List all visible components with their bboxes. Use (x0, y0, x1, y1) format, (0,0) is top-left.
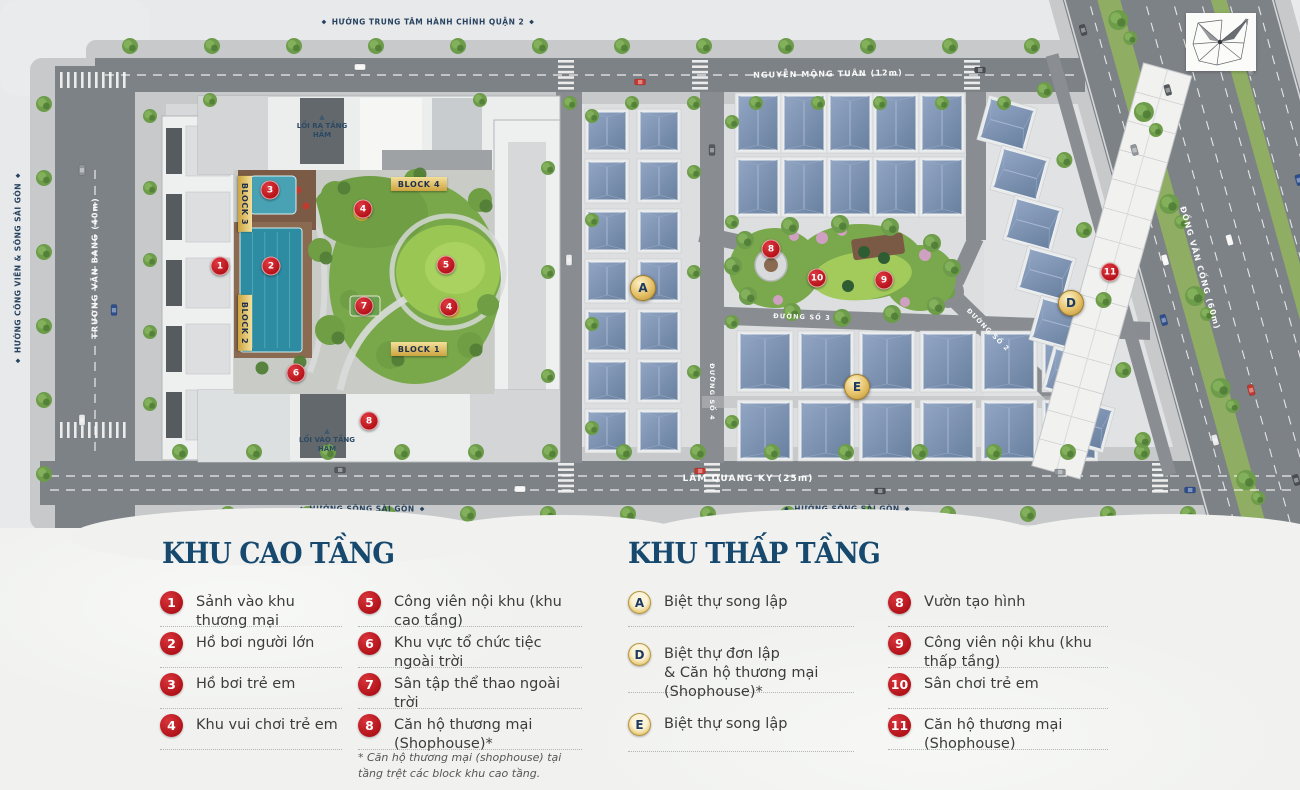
legend-marker-2: 2 (160, 632, 183, 655)
block-label: BLOCK 4 (391, 177, 447, 191)
legend-column-1: 1Sảnh vào khu thương mại2Hồ bơi người lớ… (160, 586, 342, 750)
basement-access-label: ▲LỐI RA TẦNG HẦM (290, 114, 354, 140)
compass-icon (1186, 13, 1256, 71)
legend-item-label: Khu vực tổ chức tiệc ngoài trời (394, 632, 582, 672)
map-marker-9: 9 (875, 271, 894, 290)
map-marker-4: 4 (440, 298, 459, 317)
legend-item-label: Hồ bơi trẻ em (196, 673, 295, 694)
legend-panel: KHU CAO TẦNG KHU THẤP TẦNG 1Sảnh vào khu… (0, 528, 1300, 790)
legend-column-3: ABiệt thự song lậpDBiệt thự đơn lập& Căn… (628, 586, 854, 752)
map-marker-6: 6 (287, 364, 306, 383)
legend-item: 11Căn hộ thương mại (Shophouse) (888, 709, 1108, 750)
legend-item-label: Sân chơi trẻ em (924, 673, 1039, 694)
map-marker-3: 3 (261, 181, 280, 200)
legend-marker-4: 4 (160, 714, 183, 737)
legend-marker-5: 5 (358, 591, 381, 614)
direction-arrow-icon: ◆ (420, 506, 425, 512)
legend-column-4: 8Vườn tạo hình9Công viên nội khu (khu th… (888, 586, 1108, 750)
legend-item-label: Căn hộ thương mại (Shophouse) (924, 714, 1108, 754)
legend-item: 10Sân chơi trẻ em (888, 668, 1108, 709)
legend-item-label: Biệt thự đơn lập& Căn hộ thương mại (Sho… (664, 643, 854, 702)
legend-marker-3: 3 (160, 673, 183, 696)
legend-marker-8: 8 (888, 591, 911, 614)
road-label: LÂM QUANG KY (25m) (682, 474, 813, 484)
map-marker-5: 5 (437, 256, 456, 275)
direction-arrow-icon: ◆ (322, 19, 327, 25)
direction-arrow-icon: ◆ (15, 173, 21, 178)
legend-key-E: E (628, 713, 651, 736)
legend-item: 8Căn hộ thương mại (Shophouse)* (358, 709, 582, 750)
legend-marker-11: 11 (888, 714, 911, 737)
legend-key-D: D (628, 643, 651, 666)
map-marker-8: 8 (762, 240, 781, 259)
map-marker-11: 11 (1101, 263, 1120, 282)
legend-title-low-rise: KHU THẤP TẦNG (628, 536, 880, 570)
legend-item-label: Biệt thự song lập (664, 713, 787, 734)
legend-footnote: * Căn hộ thương mại (shophouse) tại tầng… (358, 750, 588, 782)
map-zone-marker-E: E (844, 374, 870, 400)
map-marker-2: 2 (262, 257, 281, 276)
legend-item: 9Công viên nội khu (khu thấp tầng) (888, 627, 1108, 668)
master-plan-page: ◆HƯỚNG TRUNG TÂM HÀNH CHÍNH QUẬN 2◆◆HƯỚN… (0, 0, 1300, 790)
basement-access-label: ▲LỐI VÀO TẦNG HẦM (295, 428, 359, 454)
legend-item: 2Hồ bơi người lớn (160, 627, 342, 668)
ramp-arrow-icon: ▲ (295, 428, 359, 435)
legend-item-label: Khu vui chơi trẻ em (196, 714, 338, 735)
legend-marker-10: 10 (888, 673, 911, 696)
legend-marker-8: 8 (358, 714, 381, 737)
legend-item: 5Công viên nội khu (khu cao tầng) (358, 586, 582, 627)
block-label: BLOCK 3 (238, 176, 252, 232)
legend-item-label: Sảnh vào khu thương mại (196, 591, 342, 631)
cloud-edge (1010, 514, 1300, 562)
legend-marker-9: 9 (888, 632, 911, 655)
legend-marker-6: 6 (358, 632, 381, 655)
legend-marker-1: 1 (160, 591, 183, 614)
block-label: BLOCK 2 (238, 295, 252, 351)
legend-item: 6Khu vực tổ chức tiệc ngoài trời (358, 627, 582, 668)
legend-item-label: Vườn tạo hình (924, 591, 1025, 612)
legend-item: 8Vườn tạo hình (888, 586, 1108, 627)
legend-item-label: Hồ bơi người lớn (196, 632, 314, 653)
direction-arrow-icon: ◆ (529, 19, 534, 25)
legend-item-label: Sân tập thể thao ngoài trời (394, 673, 582, 713)
legend-item-label: Biệt thự song lập (664, 591, 787, 612)
map-marker-7: 7 (355, 297, 374, 316)
map-marker-8: 8 (360, 412, 379, 431)
map-marker-1: 1 (211, 257, 230, 276)
legend-item: 1Sảnh vào khu thương mại (160, 586, 342, 627)
map-zone-marker-D: D (1058, 290, 1084, 316)
legend-item: DBiệt thự đơn lập& Căn hộ thương mại (Sh… (628, 627, 854, 693)
map-marker-4: 4 (354, 200, 373, 219)
legend-key-A: A (628, 591, 651, 614)
legend-marker-7: 7 (358, 673, 381, 696)
legend-column-2: 5Công viên nội khu (khu cao tầng)6Khu vự… (358, 586, 582, 750)
legend-item-label: Công viên nội khu (khu thấp tầng) (924, 632, 1108, 672)
road-label: ĐƯỜNG SỐ 4 (708, 363, 716, 421)
ramp-arrow-icon: ▲ (290, 114, 354, 121)
road-label: TRƯƠNG VĂN BANG (40m) (91, 197, 100, 338)
legend-item-label: Công viên nội khu (khu cao tầng) (394, 591, 582, 631)
direction-arrow-icon: ◆ (15, 358, 21, 363)
block-label: BLOCK 1 (391, 342, 447, 356)
site-plan-map: ◆HƯỚNG TRUNG TÂM HÀNH CHÍNH QUẬN 2◆◆HƯỚN… (0, 0, 1300, 530)
legend-item: 4Khu vui chơi trẻ em (160, 709, 342, 750)
legend-item: 7Sân tập thể thao ngoài trời (358, 668, 582, 709)
direction-label: ◆HƯỚNG CÔNG VIÊN & SÔNG SÀI GÒN◆ (14, 173, 23, 363)
legend-item: 3Hồ bơi trẻ em (160, 668, 342, 709)
legend-item: ABiệt thự song lập (628, 586, 854, 627)
legend-item-label: Căn hộ thương mại (Shophouse)* (394, 714, 582, 754)
map-marker-10: 10 (808, 269, 827, 288)
legend-title-high-rise: KHU CAO TẦNG (162, 536, 394, 570)
direction-label: ◆HƯỚNG TRUNG TÂM HÀNH CHÍNH QUẬN 2◆ (322, 18, 535, 27)
map-zone-marker-A: A (630, 275, 656, 301)
